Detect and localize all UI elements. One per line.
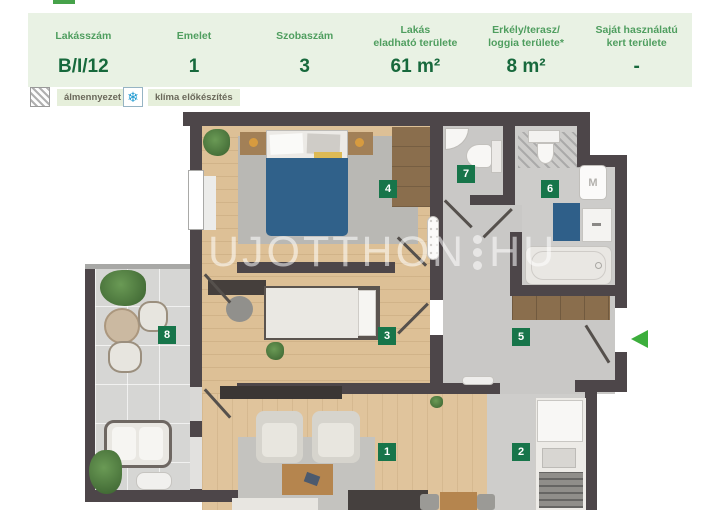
wall bbox=[575, 380, 627, 392]
plant bbox=[89, 450, 122, 494]
armchair-seat bbox=[318, 423, 354, 457]
wardrobe bbox=[392, 127, 430, 207]
toilet-tank bbox=[528, 130, 560, 143]
room-badge-3: 3 bbox=[378, 327, 396, 345]
sofa bbox=[232, 498, 318, 510]
tv-bench bbox=[348, 490, 428, 510]
armchair-seat bbox=[262, 423, 297, 457]
legend-label-klima: klíma előkészítés bbox=[148, 89, 240, 106]
legend-label-almennyezet: álmennyezet bbox=[57, 89, 128, 106]
washing-machine: M bbox=[579, 165, 607, 200]
header-col-szobaszam: Szobaszám 3 bbox=[249, 13, 360, 87]
room-badge-4: 4 bbox=[379, 180, 397, 198]
fridge bbox=[537, 400, 583, 442]
pillow bbox=[269, 133, 303, 155]
faucet-icon bbox=[592, 223, 601, 226]
toilet-tank bbox=[491, 140, 502, 173]
plant bbox=[430, 396, 443, 408]
sofa-cushion bbox=[139, 427, 163, 460]
drain-icon bbox=[595, 262, 602, 269]
bedroom-window bbox=[188, 170, 204, 230]
lamp-icon bbox=[249, 138, 258, 147]
terrace-chair bbox=[108, 341, 142, 373]
room-badge-5: 5 bbox=[512, 328, 530, 346]
room-badge-6: 6 bbox=[541, 180, 559, 198]
col-label: Lakás bbox=[373, 24, 457, 37]
col-label: Lakásszám bbox=[55, 30, 111, 43]
terrace-door-opening bbox=[190, 387, 202, 421]
room-badge-7: 7 bbox=[457, 165, 475, 183]
plant bbox=[203, 129, 230, 156]
hall-wardrobe bbox=[512, 296, 610, 320]
exterior-corner bbox=[590, 126, 627, 155]
col-value: B/I/12 bbox=[58, 56, 109, 78]
header-col-kert: Saját használatúkert területe - bbox=[581, 13, 692, 87]
col-value: 1 bbox=[189, 56, 200, 78]
single-bed bbox=[266, 288, 358, 338]
watermark-text-left: UJOTTHON bbox=[208, 228, 466, 277]
dining-chair bbox=[477, 494, 495, 510]
kitchen-sink bbox=[542, 448, 576, 468]
toilet bbox=[537, 143, 554, 164]
col-value: - bbox=[634, 56, 640, 78]
plant bbox=[266, 342, 284, 360]
hall-bench bbox=[462, 376, 494, 385]
header-col-lakasszam: Lakásszám B/I/12 bbox=[28, 13, 139, 87]
room-badge-8: 8 bbox=[158, 326, 176, 344]
header-col-emelet: Emelet 1 bbox=[139, 13, 250, 87]
terrace-tray bbox=[136, 472, 172, 490]
room-badge-1: 1 bbox=[378, 443, 396, 461]
col-value: 3 bbox=[299, 56, 310, 78]
plant bbox=[100, 270, 146, 306]
col-label: Erkély/terasz/ bbox=[488, 24, 564, 37]
snowflake-icon: ❄ bbox=[123, 87, 143, 107]
wall bbox=[183, 112, 590, 126]
terrace-table bbox=[104, 308, 140, 344]
wall bbox=[470, 195, 503, 205]
wall bbox=[585, 392, 597, 510]
col-value: 61 m² bbox=[391, 56, 441, 78]
lamp-icon bbox=[355, 138, 364, 147]
wall bbox=[510, 285, 627, 296]
wall bbox=[503, 126, 515, 205]
apartment-data-header: Lakásszám B/I/12 Emelet 1 Szobaszám 3 La… bbox=[28, 13, 692, 87]
dining-chair bbox=[420, 494, 439, 510]
floorplan-image: M 1 2 3 4 5 6 7 8 bbox=[0, 112, 720, 510]
media-console bbox=[220, 386, 342, 399]
terrace-window bbox=[190, 437, 202, 489]
hatch-icon bbox=[30, 87, 50, 107]
watermark-text-right: HU bbox=[489, 228, 557, 277]
col-label: Saját használatú bbox=[596, 24, 678, 37]
double-bed bbox=[266, 158, 348, 236]
col-value: 8 m² bbox=[506, 56, 545, 78]
terrace-edge bbox=[85, 264, 190, 269]
room-badge-2: 2 bbox=[512, 443, 530, 461]
header-col-erkely: Erkély/terasz/loggia területe* 8 m² bbox=[471, 13, 582, 87]
header-col-terulet: Lakáseladható területe 61 m² bbox=[360, 13, 471, 87]
col-label: Szobaszám bbox=[276, 30, 333, 43]
dining-table bbox=[440, 492, 477, 510]
pillow bbox=[358, 290, 376, 336]
watermark: UJOTTHON HU bbox=[208, 228, 557, 277]
col-label: Emelet bbox=[177, 30, 211, 43]
entrance-arrow-icon bbox=[631, 330, 648, 348]
window-bench bbox=[204, 176, 216, 230]
watermark-dots-icon bbox=[473, 235, 482, 270]
stove bbox=[539, 472, 583, 508]
cropped-top-element bbox=[53, 0, 75, 4]
floorplan-page: Lakásszám B/I/12 Emelet 1 Szobaszám 3 La… bbox=[0, 0, 720, 510]
